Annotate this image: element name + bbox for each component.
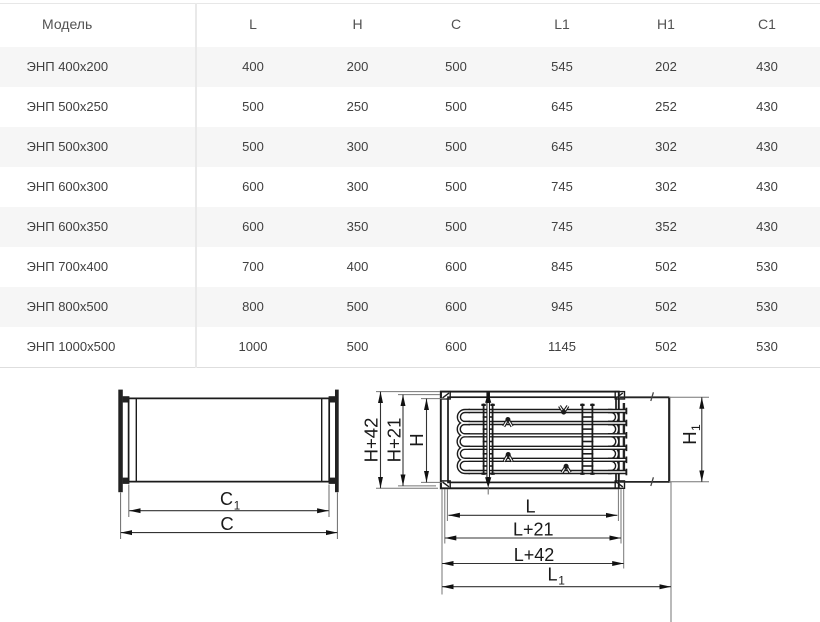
svg-text:L: L bbox=[525, 497, 535, 517]
svg-text:1: 1 bbox=[689, 424, 703, 431]
svg-text:H: H bbox=[406, 433, 427, 446]
svg-text:C: C bbox=[220, 489, 233, 509]
svg-text:C: C bbox=[220, 513, 233, 534]
svg-text:L+21: L+21 bbox=[513, 519, 554, 539]
svg-text:L+42: L+42 bbox=[514, 545, 555, 565]
svg-text:L: L bbox=[547, 565, 557, 585]
svg-text:H: H bbox=[679, 431, 700, 444]
svg-text:H+42: H+42 bbox=[361, 418, 382, 463]
svg-text:1: 1 bbox=[234, 501, 240, 513]
svg-text:H+21: H+21 bbox=[384, 418, 405, 463]
svg-text:1: 1 bbox=[558, 574, 565, 588]
